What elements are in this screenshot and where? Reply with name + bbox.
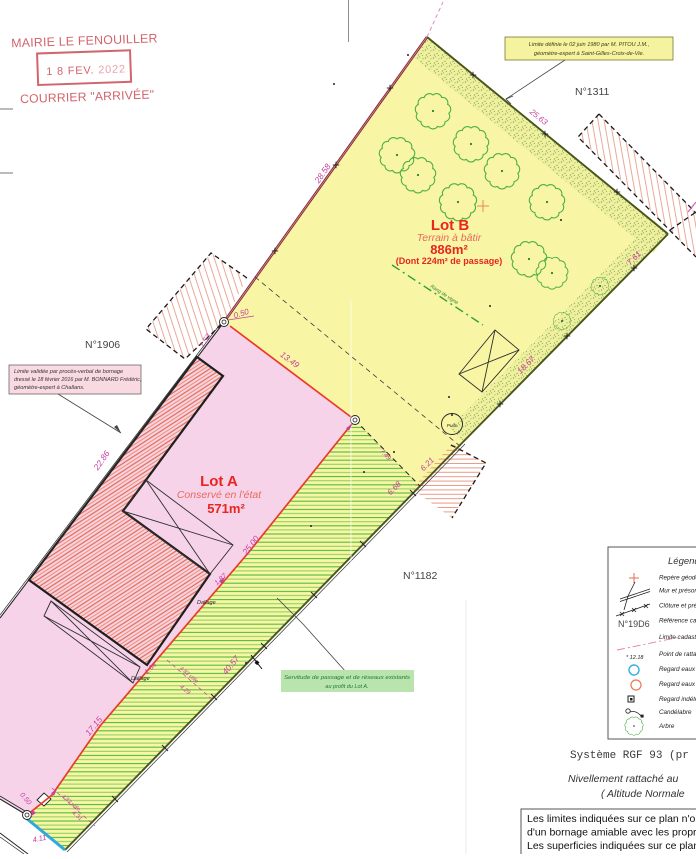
svg-text:dressé le 18 février 2016 par: dressé le 18 février 2016 par M. BONNARD… (14, 377, 141, 383)
svg-text:Candélabre: Candélabre (659, 709, 692, 716)
svg-text:Système RGF 93 (pr: Système RGF 93 (pr (570, 750, 689, 762)
svg-text:Légende: Légende (668, 556, 696, 567)
svg-text:Nivellement rattaché au: Nivellement rattaché au (568, 773, 678, 785)
svg-text:Mur et présomption: Mur et présomption (659, 588, 696, 595)
svg-text:Regard eaux plu: Regard eaux plu (659, 666, 696, 673)
svg-text:N°1311: N°1311 (575, 86, 610, 98)
svg-text:d'un bornage amiable avec les: d'un bornage amiable avec les propr (527, 827, 696, 839)
svg-text:Clôture et présom: Clôture et présom (659, 603, 696, 610)
svg-text:Regard eaux us: Regard eaux us (659, 681, 696, 688)
svg-text:au profit du Lot A.: au profit du Lot A. (325, 684, 368, 690)
svg-text:Référence cadast: Référence cadast (659, 618, 696, 625)
svg-text:Limite cadastral: Limite cadastral (659, 634, 696, 641)
svg-text:Limite définie le 02 juin 1980: Limite définie le 02 juin 1980 par M. PI… (529, 42, 650, 48)
svg-text:géomètre-expert à Challans.: géomètre-expert à Challans. (14, 385, 85, 391)
svg-text:Puits: Puits (447, 423, 458, 428)
svg-text:Dallage: Dallage (131, 676, 150, 682)
svg-text:Les superficies indiquées sur: Les superficies indiquées sur ce plan (527, 840, 696, 852)
svg-text:Les limites indiquées sur ce p: Les limites indiquées sur ce plan n'o (527, 813, 696, 825)
svg-text:* 12.18: * 12.18 (626, 655, 644, 661)
svg-text:Point de rattach: Point de rattach (659, 651, 696, 658)
svg-text:N°1182: N°1182 (403, 570, 438, 582)
svg-text:886m²: 886m² (430, 242, 468, 257)
svg-text:( Altitude Normale: ( Altitude Normale (601, 788, 685, 800)
svg-text:Repère géodésique: Repère géodésique (659, 575, 696, 582)
svg-text:571m²: 571m² (207, 501, 245, 516)
svg-text:N°1906: N°1906 (85, 339, 120, 351)
svg-text:Regard indéterm: Regard indéterm (659, 696, 696, 703)
svg-text:N°19D6: N°19D6 (618, 619, 650, 629)
svg-text:Dallage: Dallage (197, 600, 216, 606)
svg-text:géomètre-expert à Saint-Gilles: géomètre-expert à Saint-Gilles-Croix-de-… (534, 51, 644, 57)
svg-text:(Dont 224m² de passage): (Dont 224m² de passage) (396, 256, 503, 266)
svg-text:Servitude de passage et de rés: Servitude de passage et de réseaux exist… (284, 675, 410, 681)
svg-text:Arbre: Arbre (658, 723, 675, 730)
svg-text:Limite validée par procès-verb: Limite validée par procès-verbal de born… (14, 369, 123, 375)
svg-text:Conservé en l'état: Conservé en l'état (177, 489, 262, 501)
svg-text:Lot A: Lot A (200, 473, 238, 490)
